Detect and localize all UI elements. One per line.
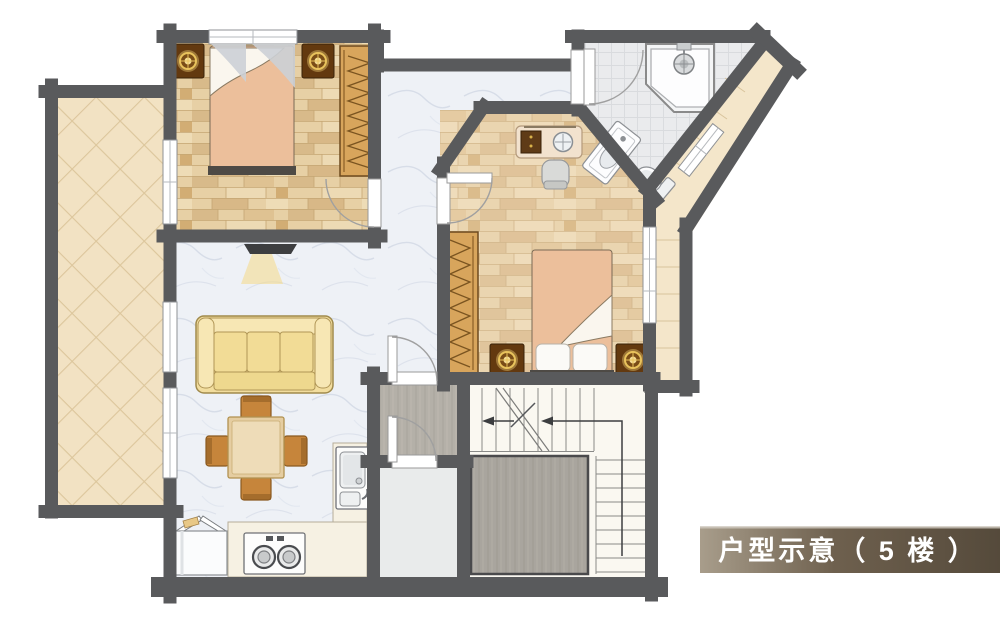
dressing-table — [516, 126, 582, 158]
living-west-window — [163, 302, 177, 478]
sofa — [196, 316, 333, 393]
utility-room-floor — [367, 459, 465, 581]
bedroom-1-west-window — [163, 140, 177, 224]
lamp-icon — [496, 349, 518, 371]
title-banner: 户型示意（ 5 楼 ） — [700, 526, 1000, 573]
page-title: 户型示意（ 5 楼 ） — [718, 535, 978, 566]
floor-plan: 户型示意（ 5 楼 ） — [0, 0, 1000, 618]
double-bed — [530, 250, 614, 379]
floor-plan-page: 户型示意（ 5 楼 ） — [0, 0, 1000, 618]
bedroom-2-east-window — [643, 227, 656, 323]
wardrobe — [446, 232, 478, 374]
entry-landing-floor — [367, 375, 465, 467]
stair-landing-block — [471, 456, 588, 574]
terrace-floor — [51, 91, 166, 511]
pillow — [573, 344, 607, 372]
lamp-icon — [307, 50, 329, 72]
lamp-icon — [622, 349, 644, 371]
desk-chair — [542, 160, 569, 189]
pillow — [536, 344, 570, 372]
lamp-icon — [177, 50, 199, 72]
stove — [244, 533, 305, 574]
